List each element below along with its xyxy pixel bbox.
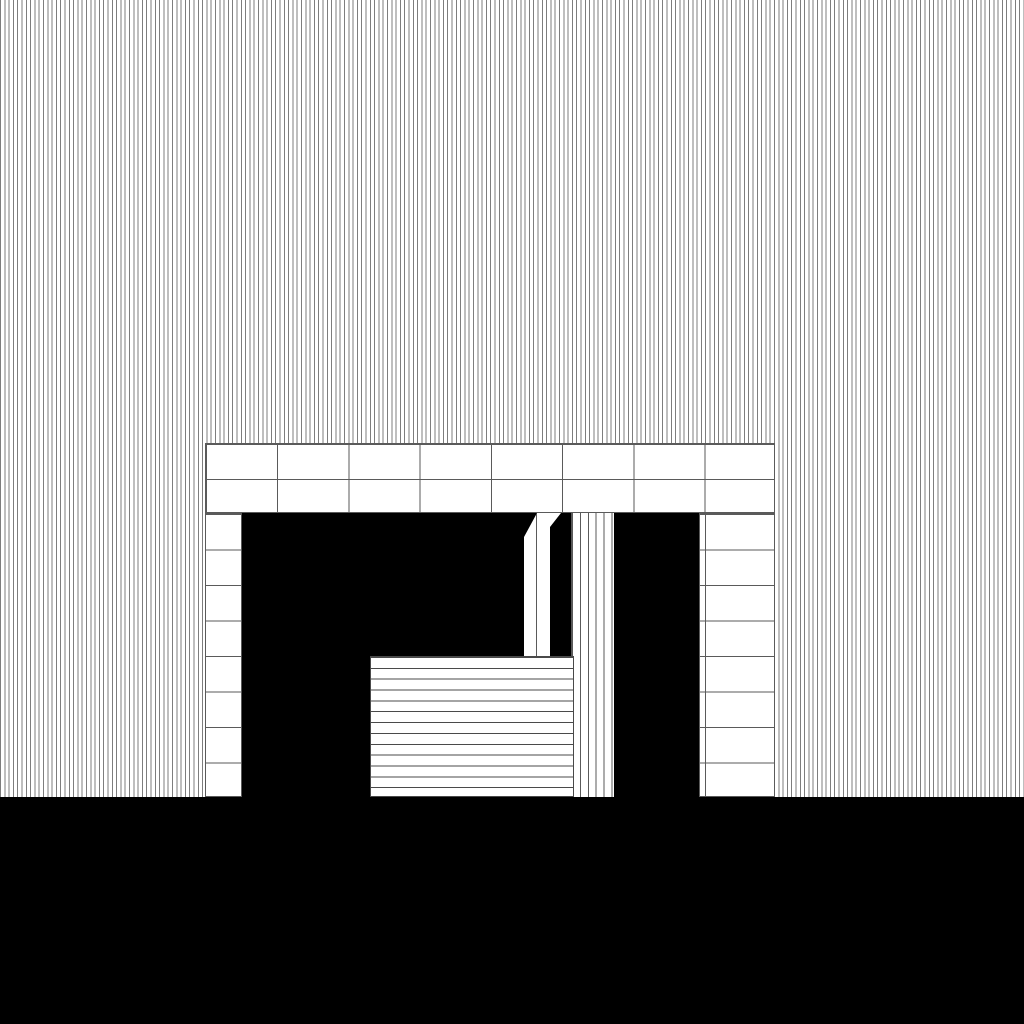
striped-pillar xyxy=(571,513,614,797)
slatted-crate xyxy=(370,656,574,797)
left-jamb xyxy=(205,513,242,797)
portal-frame xyxy=(205,443,775,797)
architectural-elevation-drawing xyxy=(0,0,1024,1024)
lintel-grid xyxy=(205,443,775,513)
post-divider-line xyxy=(536,513,537,656)
ground-band xyxy=(0,797,1024,1024)
right-jamb xyxy=(699,513,775,797)
chamfered-post xyxy=(524,513,550,656)
